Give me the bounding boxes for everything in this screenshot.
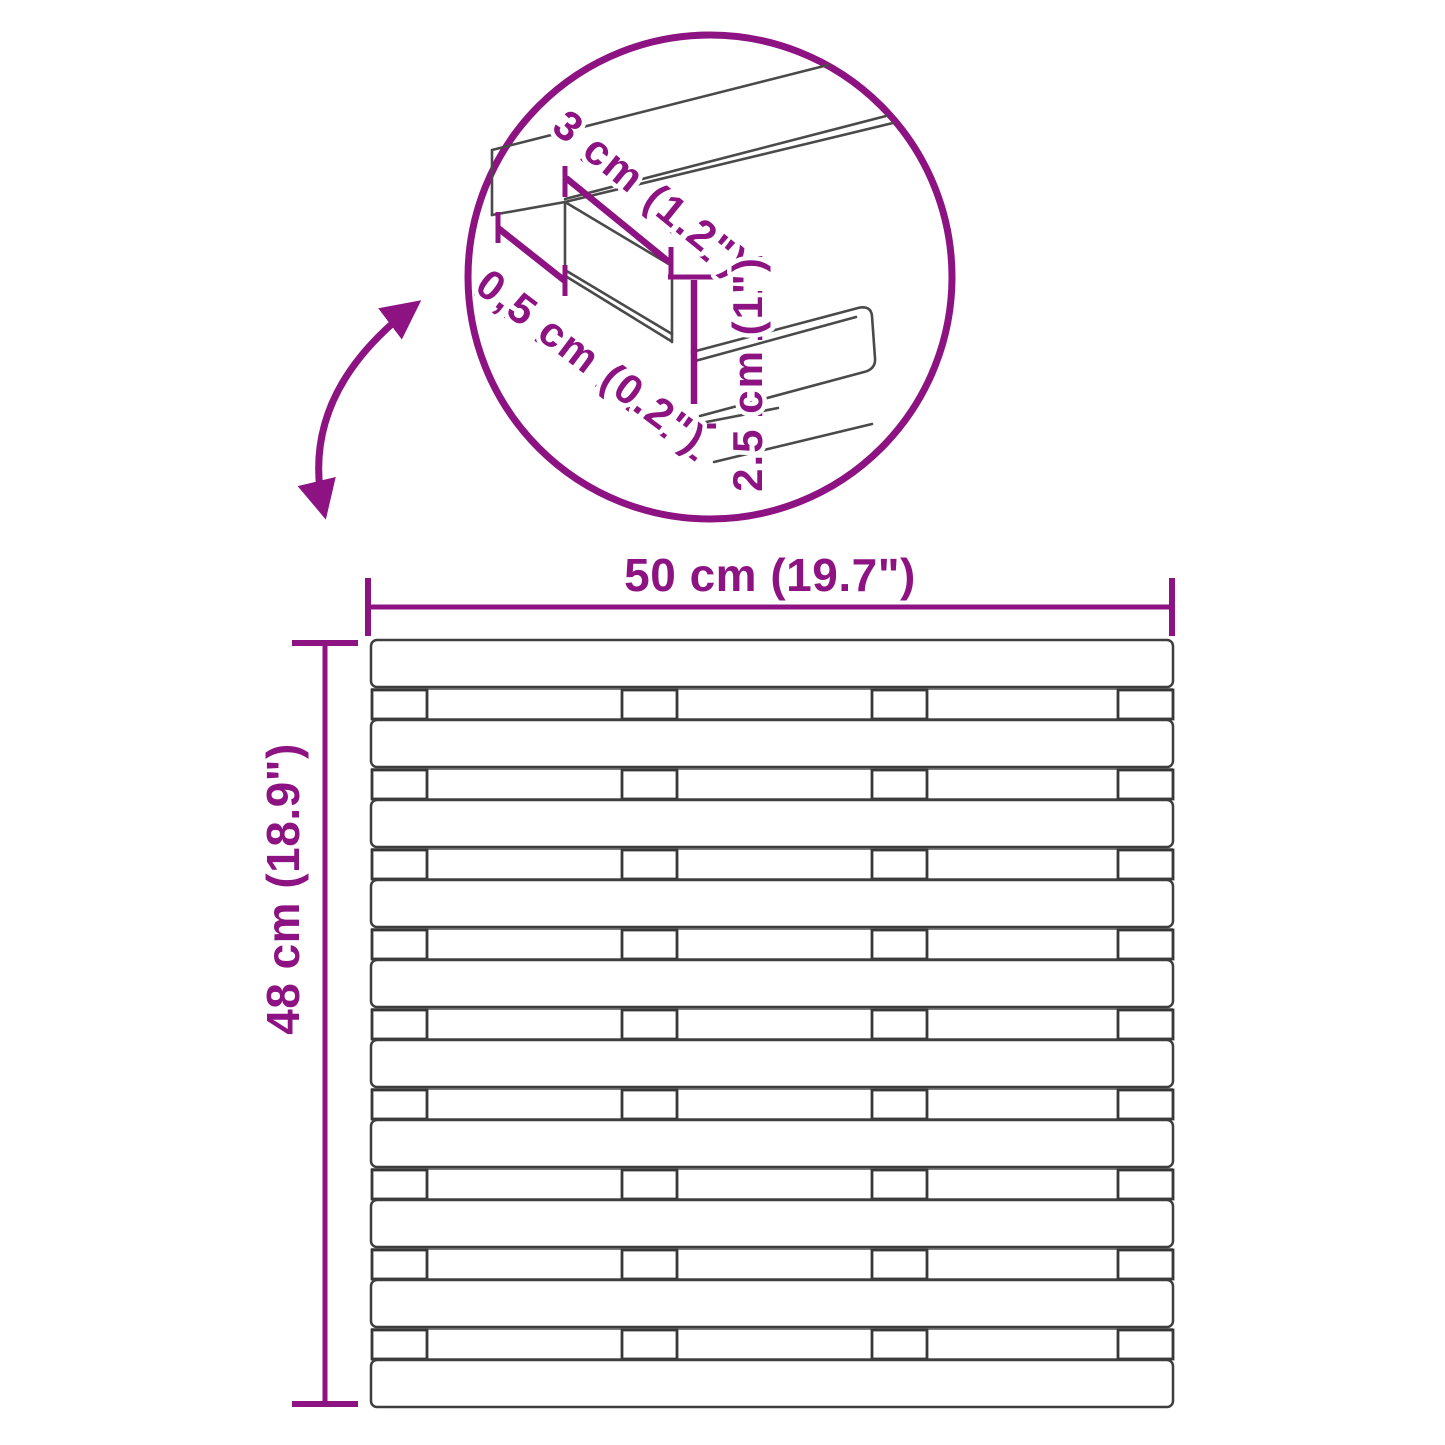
- gap-batten-block: [372, 770, 427, 799]
- gap-batten-block: [622, 850, 677, 879]
- gap-batten-block: [1118, 850, 1173, 879]
- gap-batten-block: [1118, 1330, 1173, 1359]
- gap-batten-block: [622, 1090, 677, 1119]
- gap-batten-block: [622, 1010, 677, 1039]
- gap-batten-block: [372, 850, 427, 879]
- gap-batten-block: [872, 930, 927, 959]
- gap-batten-block: [372, 1010, 427, 1039]
- gap-batten-block: [1118, 690, 1173, 719]
- slat-row: [371, 1360, 1173, 1407]
- height-dimension-label: 48 cm (18.9"): [257, 743, 309, 1035]
- gap-batten-block: [372, 1170, 427, 1199]
- gap-batten-block: [372, 930, 427, 959]
- slat-row: [371, 720, 1173, 767]
- gap-batten-block: [372, 1330, 427, 1359]
- detail-inset: 3 cm (1.2") 0,5 cm (0.2") 2.5 cm (1"): [468, 35, 952, 519]
- gap-batten-block: [1118, 930, 1173, 959]
- slat-row: [371, 1040, 1173, 1087]
- slat-row: [371, 800, 1173, 847]
- slat-row: [371, 960, 1173, 1007]
- gap-batten-block: [622, 690, 677, 719]
- diagram-svg: 3 cm (1.2") 0,5 cm (0.2") 2.5 cm (1") 50…: [0, 0, 1445, 1445]
- slat-row: [371, 1280, 1173, 1327]
- rotation-arrow-icon: [319, 305, 415, 512]
- slat-panel: [371, 640, 1173, 1407]
- slat-row: [371, 1120, 1173, 1167]
- gap-batten-block: [1118, 1090, 1173, 1119]
- width-dimension-label: 50 cm (19.7"): [624, 549, 916, 601]
- gap-batten-block: [622, 930, 677, 959]
- gap-batten-block: [1118, 770, 1173, 799]
- gap-batten-block: [872, 1170, 927, 1199]
- gap-batten-block: [872, 1090, 927, 1119]
- gap-batten-block: [372, 1250, 427, 1279]
- gap-batten-block: [622, 770, 677, 799]
- gap-batten-block: [372, 690, 427, 719]
- height-dimension: 48 cm (18.9"): [257, 643, 358, 1404]
- gap-batten-block: [872, 1010, 927, 1039]
- gap-batten-block: [1118, 1250, 1173, 1279]
- gap-batten-block: [1118, 1010, 1173, 1039]
- gap-batten-block: [372, 1090, 427, 1119]
- gap-batten-block: [872, 690, 927, 719]
- gap-batten-block: [872, 770, 927, 799]
- gap-batten-block: [622, 1250, 677, 1279]
- slat-row: [371, 640, 1173, 687]
- gap-batten-block: [622, 1330, 677, 1359]
- dimension-diagram: 3 cm (1.2") 0,5 cm (0.2") 2.5 cm (1") 50…: [0, 0, 1445, 1445]
- slat-row: [371, 1200, 1173, 1247]
- width-dimension: 50 cm (19.7"): [368, 549, 1172, 636]
- gap-batten-block: [1118, 1170, 1173, 1199]
- gap-batten-block: [622, 1170, 677, 1199]
- slat-row: [371, 880, 1173, 927]
- gap-batten-block: [872, 1330, 927, 1359]
- gap-batten-block: [872, 850, 927, 879]
- dim-2-5cm-label: 2.5 cm (1"): [724, 256, 771, 492]
- gap-batten-block: [872, 1250, 927, 1279]
